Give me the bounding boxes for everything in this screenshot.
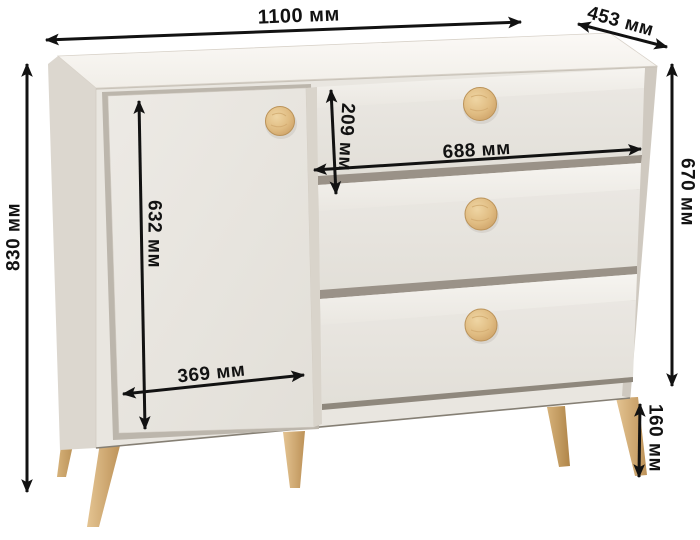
dimension-total-height-label: 830 мм bbox=[4, 203, 25, 271]
dimension-drawer-width-label: 688 мм bbox=[442, 138, 511, 163]
dimension-top-drawer-height-label: 209 мм bbox=[334, 102, 359, 171]
dimension-width-label: 1100 мм bbox=[257, 3, 340, 28]
dimension-door-height-label: 632 мм bbox=[144, 200, 165, 268]
dimension-total-height: 830 мм bbox=[4, 64, 28, 492]
leg-middle bbox=[283, 431, 305, 488]
leg-front-left bbox=[87, 442, 121, 527]
leg-back-right bbox=[547, 406, 570, 467]
cabinet-left-side bbox=[48, 56, 96, 450]
furniture-dimension-diagram: 1100 мм 453 мм 830 мм 670 мм 632 мм 369 … bbox=[0, 0, 700, 540]
leg-front-right bbox=[616, 397, 647, 476]
dimension-width: 1100 мм bbox=[46, 3, 521, 40]
dimension-body-height: 670 мм bbox=[672, 64, 698, 386]
dimension-body-height-label: 670 мм bbox=[677, 158, 698, 226]
dimension-leg-height-label: 160 мм bbox=[645, 404, 666, 472]
diagram-canvas: 1100 мм 453 мм 830 мм 670 мм 632 мм 369 … bbox=[0, 0, 700, 540]
